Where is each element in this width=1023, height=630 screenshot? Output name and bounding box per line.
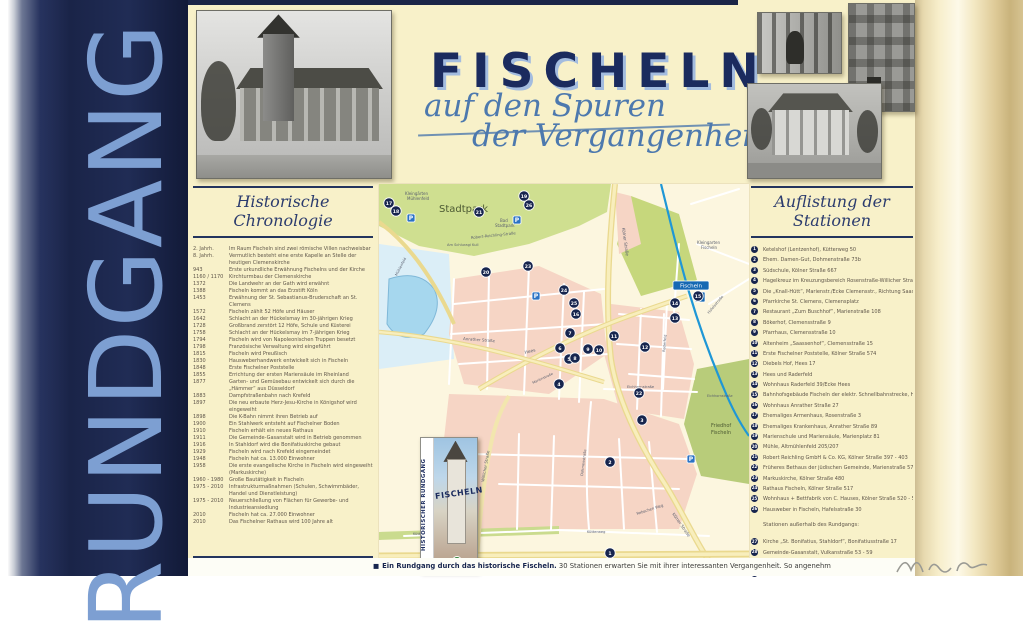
svg-text:23: 23 (525, 264, 531, 270)
chronology-row: 1855Errichtung der ersten Mariensäule im… (193, 372, 373, 379)
chronology-row: 1848Erste Fischelner Poststelle (193, 365, 373, 372)
chronology-row: 8. Jahrh.Vermutlich besteht eine erste K… (193, 253, 373, 267)
station-item: 10Altenheim „Saassenhof“, Clemensstraße … (751, 340, 913, 348)
map-label: Mühlenfeld (407, 196, 430, 201)
station-number-badge: 16 (751, 402, 758, 409)
chronology-row: 1794Fischeln wird von Napoleonischen Tru… (193, 337, 373, 344)
chronology-year: 1960 - 1980 (193, 477, 229, 484)
chronology-year: 1929 (193, 449, 229, 456)
chronology-row: 1798Französische Verwaltung wird eingefü… (193, 344, 373, 351)
station-number-badge: 18 (751, 423, 758, 430)
map-label: Kütterweg (587, 530, 605, 534)
chronology-text: Großbrand zerstört 12 Höfe, Schule und K… (229, 323, 373, 330)
station-text: Restaurant „Zum Buschhof“, Marienstraße … (763, 308, 913, 316)
chronology-row: 1916In Stahldorf wird die Bonifatiuskirc… (193, 442, 373, 449)
photo-tree (857, 110, 878, 152)
chronology-text: Ein Stahlwerk entsteht auf Fischelner Bo… (229, 421, 373, 428)
chronology-year: 1572 (193, 309, 229, 316)
chronology-year: 1916 (193, 442, 229, 449)
chronology-text: Infrastrukturmaßnahmen (Schulen, Schwimm… (229, 484, 373, 498)
station-text: Ehemaliges Krankenhaus, Anrather Straße … (763, 423, 913, 431)
station-item: 11Erste Fischelner Poststelle, Kölner St… (751, 350, 913, 358)
chronology-year: 1910 (193, 428, 229, 435)
chronology-text: Vermutlich besteht eine erste Kapelle an… (229, 253, 373, 267)
svg-text:9: 9 (586, 347, 589, 353)
map-marker-2: 2 (605, 457, 615, 467)
station-item: 27Kirche „St. Bonifatius, Stahldorf“, Bo… (751, 538, 913, 546)
stations-heading: Auflistung der Stationen (774, 192, 890, 230)
svg-text:2: 2 (608, 460, 611, 466)
station-number-badge: 6 (751, 298, 758, 305)
map-marker-26: 26 (524, 200, 534, 210)
chronology-row: 1830Hausweberhandwerk entwickelt sich in… (193, 358, 373, 365)
chronology-year: 1855 (193, 372, 229, 379)
station-item: 5Die „Knall-Hütt“, Marienstr./Ecke Cleme… (751, 288, 913, 296)
station-text: Diebels Hof, Hees 17 (763, 360, 913, 368)
station-number-badge: 27 (751, 538, 758, 545)
svg-text:P: P (515, 217, 520, 224)
station-text: Pfarrkirche St. Clemens, Clemensplatz (763, 298, 913, 306)
brochure-vertical-title: HISTORISCHER RUNDGANG (421, 442, 433, 568)
station-number-badge: 7 (751, 308, 758, 315)
chronology-row: 1758Schlacht an der Hückelsmay im 7-jähr… (193, 330, 373, 337)
chronology-year: 1815 (193, 351, 229, 358)
svg-text:3: 3 (640, 418, 643, 424)
chronology-text: Fischeln hat ca. 27.000 Einwohner (229, 512, 373, 519)
svg-text:16: 16 (573, 312, 579, 318)
chronology-row: 1960 - 1980Große Bautätigkeit in Fischel… (193, 477, 373, 484)
map-marker-18: 18 (391, 206, 401, 216)
chronology-text: Fischeln kommt an das Erzstift Köln (229, 288, 373, 295)
station-number-badge: 21 (751, 454, 758, 461)
chronology-year: 2010 (193, 512, 229, 519)
chronology-year: 8. Jahrh. (193, 253, 229, 267)
station-text: Ehemaliges Armenhaus, Rosenstraße 3 (763, 412, 913, 420)
footer: ■Ein Rundgang durch das historische Fisc… (188, 558, 915, 576)
stations-outside-note: Stationen außerhalb des Rundgangs: (763, 522, 913, 528)
map-marker-6: 6 (555, 343, 565, 353)
svg-text:14: 14 (672, 301, 678, 307)
station-number-badge: 23 (751, 475, 758, 482)
chronology-text: Fischeln wird von Napoleonischen Truppen… (229, 337, 373, 344)
chronology-year: 943 (193, 267, 229, 274)
map-label: Friedhof (711, 423, 731, 429)
spine-banner: RUNDGANG (8, 0, 188, 576)
map-label: Am Schluragi Kull (447, 243, 478, 247)
station-item: 26Hausweber in Fischeln, Hafelsstraße 30 (751, 506, 913, 514)
svg-text:P: P (534, 293, 539, 300)
chronology-year: 1642 (193, 316, 229, 323)
chronology-text: Schlacht an der Hückelsmay im 7-jährigen… (229, 330, 373, 337)
station-number-badge: 11 (751, 350, 758, 357)
photo-weaver-loom (757, 12, 842, 74)
station-text: Kirche „St. Bonifatius, Stahldorf“, Boni… (763, 538, 913, 546)
svg-text:10: 10 (596, 348, 602, 354)
footer-text: ■Ein Rundgang durch das historische Fisc… (373, 562, 831, 570)
svg-text:15: 15 (695, 294, 701, 300)
station-item: 19Marienschule und Mariensäule, Marienpl… (751, 433, 913, 441)
map-marker-12: 12 (640, 342, 650, 352)
chronology-year: 1900 (193, 421, 229, 428)
chronology-row: 943Erste urkundliche Erwähnung Fischelns… (193, 267, 373, 274)
station-number-badge: 10 (751, 340, 758, 347)
chronology-text: Die Landwehr an der Gath wird erwähnt (229, 281, 373, 288)
station-number-badge: 28 (751, 549, 758, 556)
station-item: 7Restaurant „Zum Buschhof“, Marienstraße… (751, 308, 913, 316)
station-text: Marienschule und Mariensäule, Marienplat… (763, 433, 913, 441)
svg-text:P: P (409, 215, 414, 222)
chronology-year: 1160 / 1170 (193, 274, 229, 281)
brochure-photo: FISCHELN (434, 438, 477, 571)
chronology-year: 1848 (193, 365, 229, 372)
footer-bullet: ■ (373, 562, 379, 570)
chronology-heading-block: Historische Chronologie (193, 186, 373, 238)
station-item: 9Pfarrhaus, Clemensstraße 10 (751, 329, 913, 337)
station-text: Mühle, Altmühlenfeld 205/207 (763, 443, 913, 451)
station-item: 6Pfarrkirche St. Clemens, Clemensplatz (751, 298, 913, 306)
chronology-year: 1877 (193, 379, 229, 393)
parking-icon: P (687, 455, 695, 463)
svg-text:17: 17 (386, 201, 392, 207)
photo-gasthaus (747, 83, 882, 179)
station-number-badge: 13 (751, 371, 758, 378)
chronology-text: Schlacht an der Hückelsmay im 30-jährige… (229, 316, 373, 323)
chronology-text: Kirchturmbau der Clemenskirche (229, 274, 373, 281)
svg-text:21: 21 (476, 210, 482, 216)
svg-text:11: 11 (611, 334, 617, 340)
svg-text:P: P (689, 456, 694, 463)
chronology-text: Im Raum Fischeln sind zwei römische Vill… (229, 246, 373, 253)
station-item: 8Bökerhof, Clemensstraße 9 (751, 319, 913, 327)
chronology-row: 1877Garten- und Gemüsebau entwickelt sic… (193, 379, 373, 393)
chronology-year: 2. Jahrh. (193, 246, 229, 253)
chronology-row: 1815Fischeln wird Preußisch (193, 351, 373, 358)
svg-text:12: 12 (642, 345, 648, 351)
station-item: 16Wohnhaus Anrather Straße 27 (751, 402, 913, 410)
station-number-badge: 17 (751, 412, 758, 419)
chronology-row: 1975 - 2010Infrastrukturmaßnahmen (Schul… (193, 484, 373, 498)
station-number-badge: 26 (751, 506, 758, 513)
chronology-row: 1372Die Landwehr an der Gath wird erwähn… (193, 281, 373, 288)
station-text: Rathaus Fischeln, Kölner Straße 517 (763, 485, 913, 493)
chronology-row: 1388Fischeln kommt an das Erzstift Köln (193, 288, 373, 295)
chronology-year: 1898 (193, 414, 229, 421)
station-item: 12Diebels Hof, Hees 17 (751, 360, 913, 368)
chronology-row: 1911Die Gemeinde-Gasanstalt wird in Betr… (193, 435, 373, 442)
stations-list: 1Ketelshof (Lentzenhof), Kütterweg 502Eh… (751, 246, 913, 513)
station-number-badge: 1 (751, 246, 758, 253)
map-marker-25: 25 (569, 298, 579, 308)
station-number-badge: 15 (751, 391, 758, 398)
chronology-text: Erwähnung der St. Sebastianus-Bruderscha… (229, 295, 373, 309)
station-number-badge: 9 (751, 329, 758, 336)
chronology-year: 1883 (193, 393, 229, 400)
svg-text:25: 25 (571, 301, 577, 307)
chronology-row: 1898Die K-Bahn nimmt ihren Betrieb auf (193, 414, 373, 421)
station-item: 1Ketelshof (Lentzenhof), Kütterweg 50 (751, 246, 913, 254)
chronology-year: 1975 - 2010 (193, 484, 229, 498)
chronology-text: Erste Fischelner Poststelle (229, 365, 373, 372)
station-item: 24Rathaus Fischeln, Kölner Straße 517 (751, 485, 913, 493)
chronology-row: 1910Fischeln erhält ein neues Rathaus (193, 428, 373, 435)
station-item: 15Bahnhofsgebäude Fischeln der elektr. S… (751, 391, 913, 399)
svg-text:18: 18 (393, 209, 399, 215)
map-marker-7: 7 (565, 328, 575, 338)
chronology-row: 1572Fischeln zählt 52 Höfe und Häuser (193, 309, 373, 316)
station-text: Altenheim „Saassenhof“, Clemensstraße 15 (763, 340, 913, 348)
station-text: Hausweber in Fischeln, Hafelsstraße 30 (763, 506, 913, 514)
svg-text:13: 13 (672, 316, 678, 322)
station-text: Hagelkreuz im Kreuzungsbereich Rosenstra… (763, 277, 913, 285)
chronology-text: Die neu erbaute Herz-Jesu-Kirche in Köni… (229, 400, 373, 414)
chronology-row: 1642Schlacht an der Hückelsmay im 30-jäh… (193, 316, 373, 323)
station-text: Wohnhaus + Bettfabrik von C. Hauses, Köl… (763, 495, 913, 503)
photo-rathaus (196, 10, 392, 179)
spine-title: RUNDGANG (68, 0, 186, 630)
station-text: Pfarrhaus, Clemensstraße 10 (763, 329, 913, 337)
chronology-year: 1798 (193, 344, 229, 351)
photo-tree (201, 61, 236, 141)
svg-text:24: 24 (561, 288, 567, 294)
station-number-badge: 5 (751, 288, 758, 295)
map-marker-4: 4 (554, 379, 564, 389)
svg-text:19: 19 (521, 194, 527, 200)
chronology-text: Fischeln erhält ein neues Rathaus (229, 428, 373, 435)
station-text: Robert Reichling GmbH & Co. KG, Kölner S… (763, 454, 913, 462)
svg-text:6: 6 (558, 346, 561, 352)
chronology-row: 1975 - 2010Neuerschließung von Flächen f… (193, 498, 373, 512)
chronology-year: 1975 - 2010 (193, 498, 229, 512)
chronology-row: 1883Dampfstraßenbahn nach Krefeld (193, 393, 373, 400)
brochure-tower (447, 459, 466, 543)
chronology-row: 2010Fischeln hat ca. 27.000 Einwohner (193, 512, 373, 519)
map-marker-21: 21 (474, 207, 484, 217)
chronology-text: Fischeln wird Preußisch (229, 351, 373, 358)
chronology-text: Dampfstraßenbahn nach Krefeld (229, 393, 373, 400)
chronology-text: Fischeln wird nach Krefeld eingemeindet (229, 449, 373, 456)
station-item: 13Hees und Raderfeld (751, 371, 913, 379)
map-marker-11: 11 (609, 331, 619, 341)
chronology-row: 1948Fischeln hat ca. 13.000 Einwohner (193, 456, 373, 463)
svg-text:7: 7 (568, 331, 571, 337)
svg-text:22: 22 (636, 391, 642, 397)
station-number-badge: 3 (751, 267, 758, 274)
station-number-badge: 20 (751, 443, 758, 450)
station-item: 17Ehemaliges Armenhaus, Rosenstraße 3 (751, 412, 913, 420)
chronology-year: 1388 (193, 288, 229, 295)
chronology-text: Die Gemeinde-Gasanstalt wird in Betrieb … (229, 435, 373, 442)
chronology-text: Fischeln hat ca. 13.000 Einwohner (229, 456, 373, 463)
map-marker-22: 22 (634, 388, 644, 398)
chronology-year: 1758 (193, 330, 229, 337)
map-marker-13: 13 (670, 313, 680, 323)
map-marker-20: 20 (481, 267, 491, 277)
chronology-text: Die erste evangelische Kirche in Fischel… (229, 463, 373, 477)
photo-building (772, 110, 849, 155)
station-sign-label: Fischeln (680, 284, 703, 290)
chronology-row: 1900Ein Stahlwerk entsteht auf Fischelne… (193, 421, 373, 428)
station-item: 28Gemeinde-Gasanstalt, Vulkanstraße 53 -… (751, 549, 913, 557)
chronology-year: 1728 (193, 323, 229, 330)
station-number-badge: 19 (751, 433, 758, 440)
station-text: Erste Fischelner Poststelle, Kölner Stra… (763, 350, 913, 358)
station-item: 14Wohnhaus Raderfeld 39/Ecke Hees (751, 381, 913, 389)
chronology-row: 1929Fischeln wird nach Krefeld eingemein… (193, 449, 373, 456)
station-number-badge: 2 (751, 256, 758, 263)
chronology-year: 1958 (193, 463, 229, 477)
stations-column: Auflistung der Stationen 1Ketelshof (Len… (751, 186, 913, 558)
publisher-logo (893, 556, 993, 576)
chronology-year: 1830 (193, 358, 229, 365)
station-item: 22Früheres Bethaus der jüdischen Gemeind… (751, 464, 913, 472)
parking-icon: P (513, 216, 521, 224)
station-text: Ketelshof (Lentzenhof), Kütterweg 50 (763, 246, 913, 254)
chronology-text: Neuerschließung von Flächen für Gewerbe-… (229, 498, 373, 512)
chronology-year: 1372 (193, 281, 229, 288)
map-marker-9: 9 (583, 344, 593, 354)
chronology-text: Das Fischelner Rathaus wird 100 Jahre al… (229, 519, 373, 526)
stations-heading-block: Auflistung der Stationen (751, 186, 913, 238)
station-number-badge: 14 (751, 381, 758, 388)
station-text: Ehem. Damen-Gut, Dohmenstraße 73b (763, 256, 913, 264)
photo-street (748, 163, 881, 178)
photo-figure (786, 31, 804, 64)
station-text: Wohnhaus Anrather Straße 27 (763, 402, 913, 410)
map-marker-1: 1 (605, 548, 615, 558)
photo-tower (263, 34, 294, 121)
map-label: Fischeln (711, 430, 731, 436)
parking-icon: P (532, 292, 540, 300)
board-right-edge (915, 0, 1023, 576)
station-text: Wohnhaus Raderfeld 39/Ecke Hees (763, 381, 913, 389)
station-text: Markuskirche, Kölner Straße 480 (763, 475, 913, 483)
photo-building (240, 88, 380, 141)
chronology-heading: Historische Chronologie (233, 192, 332, 230)
station-text: Gemeinde-Gasanstalt, Vulkanstraße 53 - 5… (763, 549, 913, 557)
chronology-text: Erste urkundliche Erwähnung Fischelns un… (229, 267, 373, 274)
chronology-text: Errichtung der ersten Mariensäule im Rhe… (229, 372, 373, 379)
map-marker-16: 16 (571, 309, 581, 319)
chronology-row: 1958Die erste evangelische Kirche in Fis… (193, 463, 373, 477)
poster-board: { "spine": { "text": "RUNDGANG" }, "titl… (0, 0, 1023, 576)
station-text: Hees und Raderfeld (763, 371, 913, 379)
footer-rest: 30 Stationen erwarten Sie mit ihrer inte… (557, 562, 831, 570)
chronology-text: Fischeln zählt 52 Höfe und Häuser (229, 309, 373, 316)
map-marker-14: 14 (670, 298, 680, 308)
chronology-text: Garten- und Gemüsebau entwickelt sich du… (229, 379, 373, 393)
map-marker-10: 10 (594, 345, 604, 355)
map-marker-23: 23 (523, 261, 533, 271)
chronology-row: 1728Großbrand zerstört 12 Höfe, Schule u… (193, 323, 373, 330)
map-label: Stadtpark (495, 223, 515, 228)
station-number-badge: 25 (751, 495, 758, 502)
footer-lead: Ein Rundgang durch das historische Fisch… (382, 562, 557, 570)
map-marker-24: 24 (559, 285, 569, 295)
chronology-column: Historische Chronologie 2. Jahrh.Im Raum… (193, 186, 373, 558)
chronology-row: 1453Erwähnung der St. Sebastianus-Bruder… (193, 295, 373, 309)
map-label: Fischeln (701, 245, 718, 250)
chronology-year: 1794 (193, 337, 229, 344)
photo-roof (236, 68, 383, 90)
chronology-row: 1897Die neu erbaute Herz-Jesu-Kirche in … (193, 400, 373, 414)
svg-text:26: 26 (526, 203, 532, 209)
chronology-year: 1897 (193, 400, 229, 414)
chronology-text: Französische Verwaltung wird eingeführt (229, 344, 373, 351)
photo-ground (197, 155, 391, 178)
map-marker-3: 3 (637, 415, 647, 425)
chronology-text: Die K-Bahn nimmt ihren Betrieb auf (229, 414, 373, 421)
svg-text:8: 8 (573, 356, 576, 362)
map-marker-15: 15 (693, 291, 703, 301)
station-number-badge: 4 (751, 277, 758, 284)
map-label: Eichhornstraße (707, 394, 733, 398)
station-item: 25Wohnhaus + Bettfabrik von C. Hauses, K… (751, 495, 913, 503)
station-item: 23Markuskirche, Kölner Straße 480 (751, 475, 913, 483)
station-item: 2Ehem. Damen-Gut, Dohmenstraße 73b (751, 256, 913, 264)
chronology-text: Große Bautätigkeit in Fischeln (229, 477, 373, 484)
chronology-year: 1948 (193, 456, 229, 463)
chronology-text: In Stahldorf wird die Bonifatiuskirche g… (229, 442, 373, 449)
station-number-badge: 22 (751, 464, 758, 471)
station-item: 20Mühle, Altmühlenfeld 205/207 (751, 443, 913, 451)
svg-text:1: 1 (608, 551, 611, 557)
station-item: 18Ehemaliges Krankenhaus, Anrather Straß… (751, 423, 913, 431)
svg-text:20: 20 (483, 270, 489, 276)
station-text: Die „Knall-Hütt“, Marienstr./Ecke Clemen… (763, 288, 913, 296)
brochure-inset: HISTORISCHER RUNDGANG FISCHELN (420, 437, 478, 572)
station-text: Früheres Bethaus der jüdischen Gemeinde,… (763, 464, 913, 472)
station-number-badge: 12 (751, 360, 758, 367)
station-number-badge: 24 (751, 485, 758, 492)
chronology-year: 1453 (193, 295, 229, 309)
chronology-row: 1160 / 1170Kirchturmbau der Clemenskirch… (193, 274, 373, 281)
svg-text:4: 4 (557, 382, 560, 388)
chronology-year: 1911 (193, 435, 229, 442)
station-text: Bökerhof, Clemensstraße 9 (763, 319, 913, 327)
station-item: 3Südschule, Kölner Straße 667 (751, 267, 913, 275)
photo-tree (751, 108, 772, 150)
station-item: 21Robert Reichling GmbH & Co. KG, Kölner… (751, 454, 913, 462)
poster-subtitle-2: der Vergangenheit (472, 118, 765, 154)
chronology-rows: 2. Jahrh.Im Raum Fischeln sind zwei römi… (193, 246, 373, 526)
station-text: Südschule, Kölner Straße 667 (763, 267, 913, 275)
chronology-year: 2010 (193, 519, 229, 526)
chronology-text: Hausweberhandwerk entwickelt sich in Fis… (229, 358, 373, 365)
station-number-badge: 8 (751, 319, 758, 326)
chronology-row: 2. Jahrh.Im Raum Fischeln sind zwei römi… (193, 246, 373, 253)
station-text: Bahnhofsgebäude Fischeln der elektr. Sch… (763, 391, 913, 399)
parking-icon: P (407, 214, 415, 222)
map-marker-8: 8 (570, 353, 580, 363)
chronology-row: 2010Das Fischelner Rathaus wird 100 Jahr… (193, 519, 373, 526)
station-item: 4Hagelkreuz im Kreuzungsbereich Rosenstr… (751, 277, 913, 285)
